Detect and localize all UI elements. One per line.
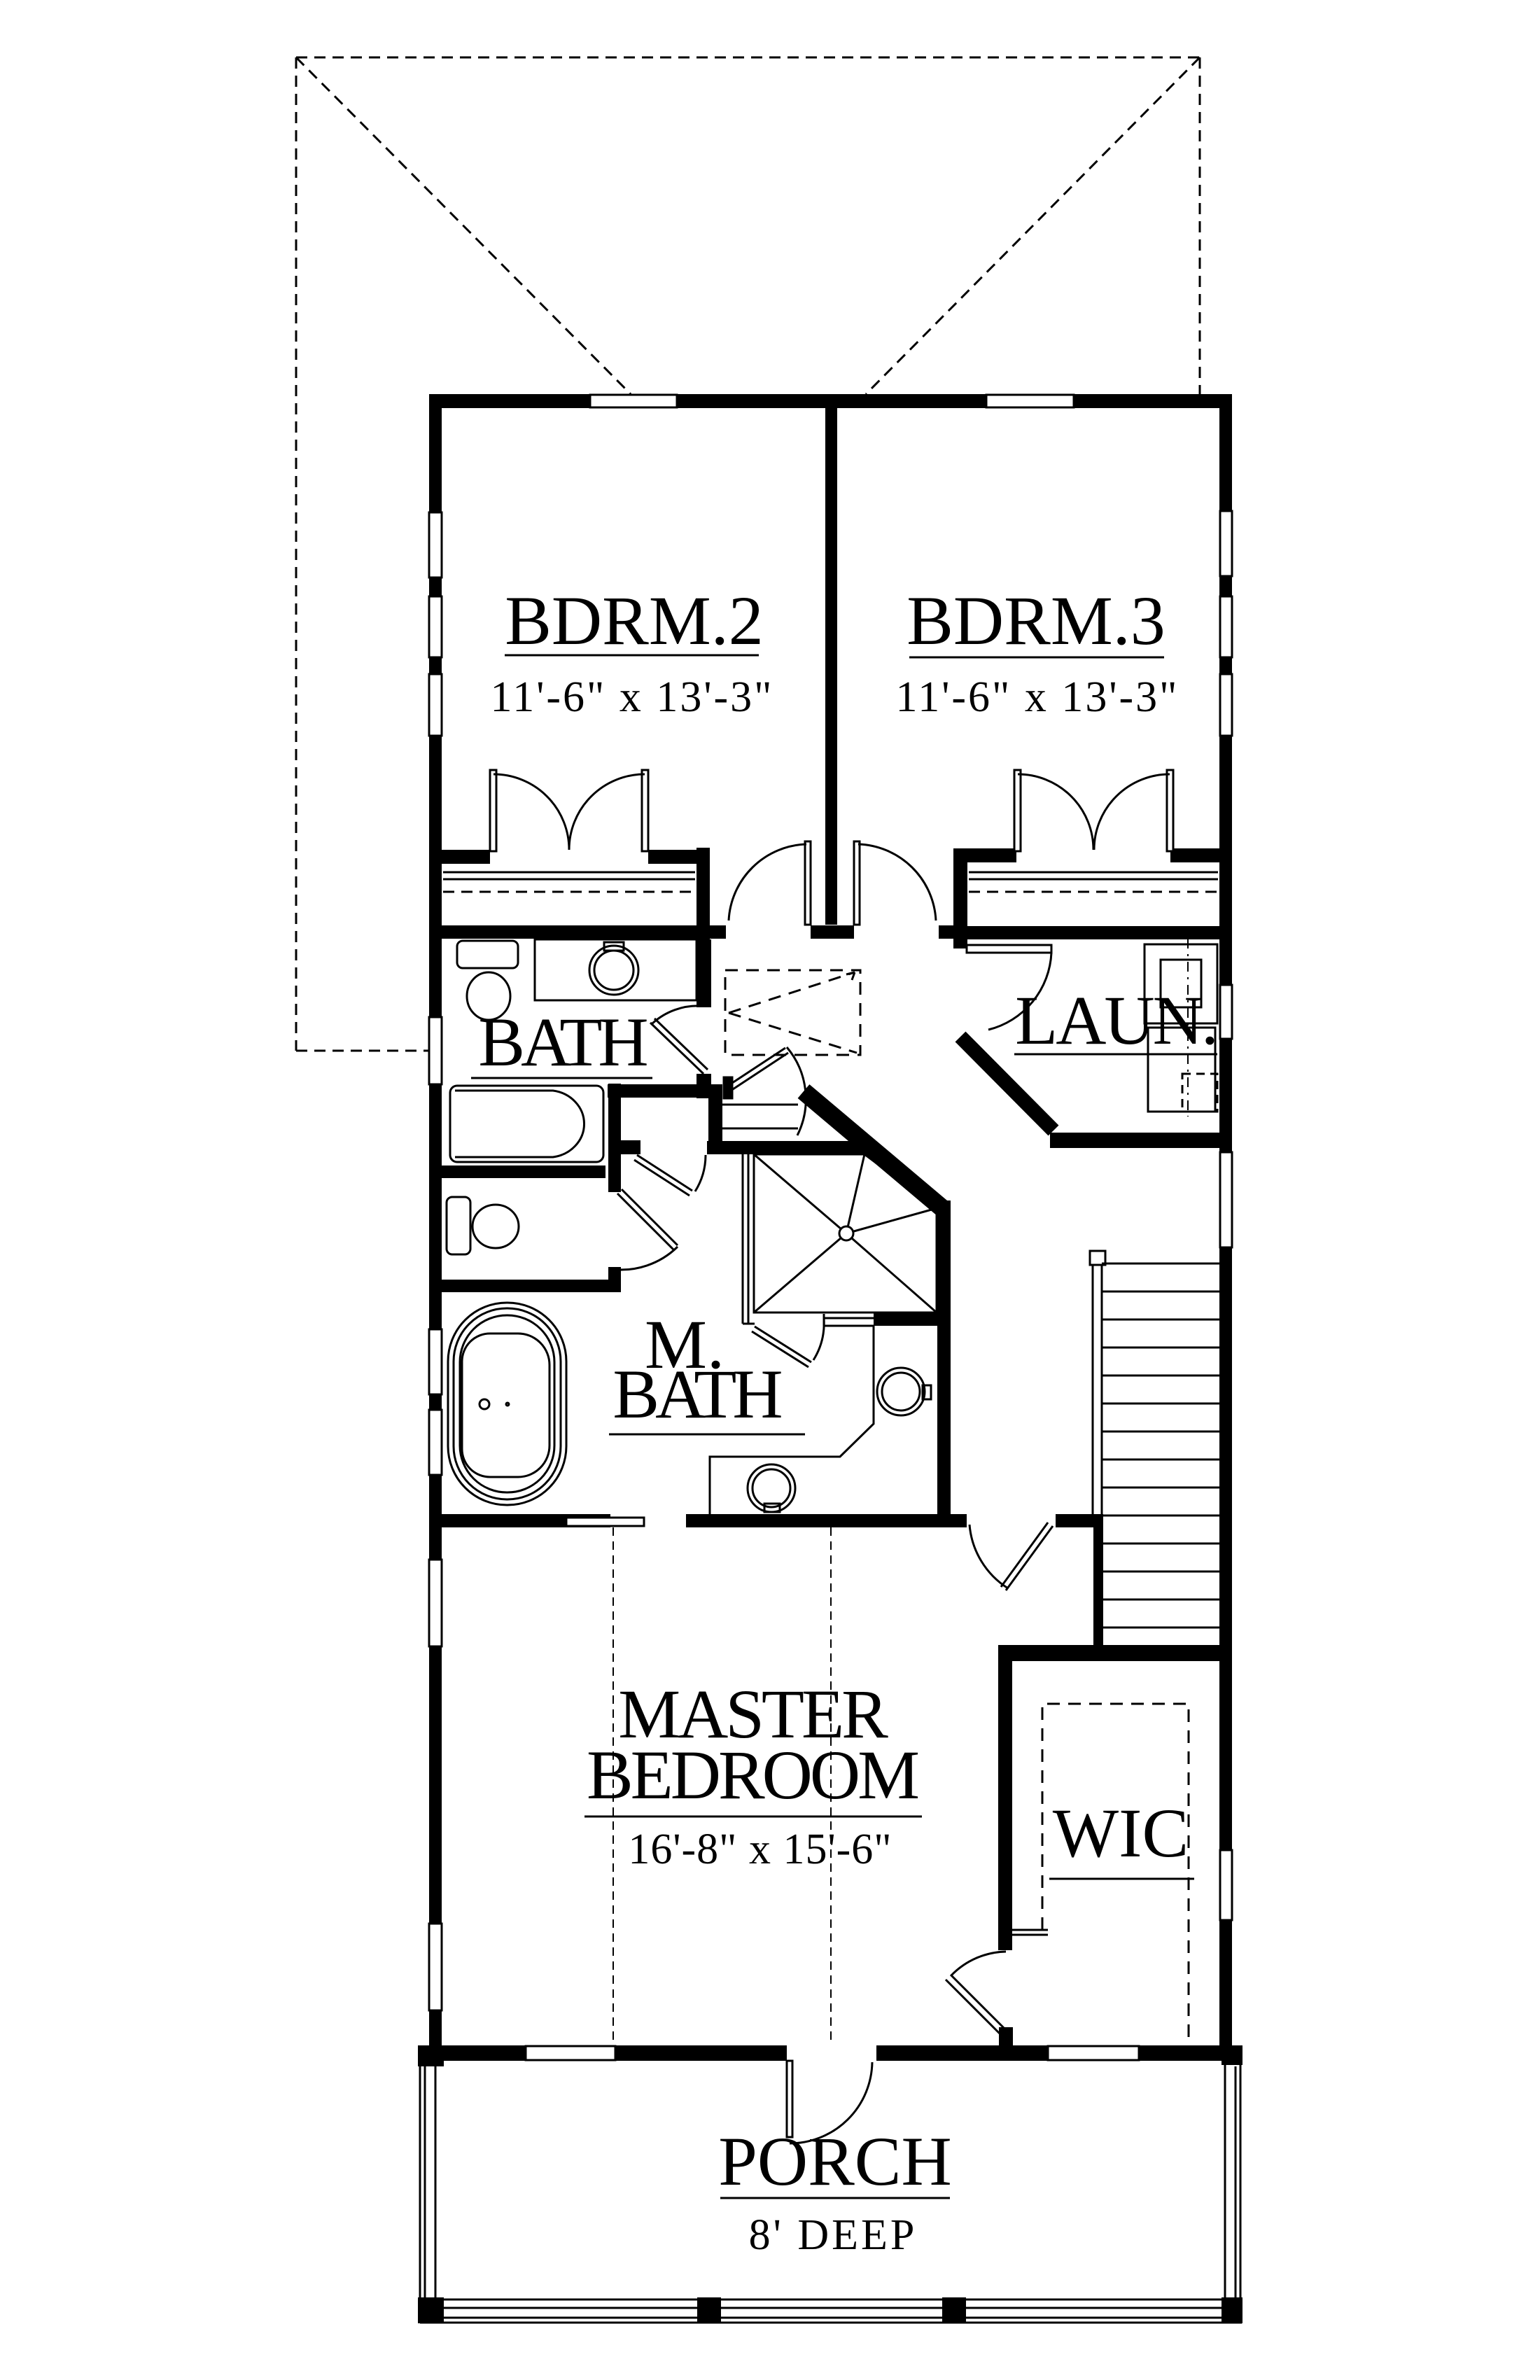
svg-text:LAUN.: LAUN. <box>1015 981 1217 1059</box>
svg-text:PORCH: PORCH <box>718 2122 951 2200</box>
svg-text:8' DEEP: 8' DEEP <box>749 2211 918 2259</box>
svg-text:WIC: WIC <box>1053 1794 1189 1872</box>
svg-text:BATH: BATH <box>612 1355 781 1433</box>
svg-text:BDRM.3: BDRM.3 <box>906 582 1165 659</box>
svg-text:BEDROOM: BEDROOM <box>587 1736 918 1814</box>
svg-text:11'-6" x 13'-3": 11'-6" x 13'-3" <box>896 673 1179 721</box>
svg-text:11'-6" x 13'-3": 11'-6" x 13'-3" <box>491 673 774 721</box>
svg-text:BATH: BATH <box>478 1003 647 1081</box>
svg-text:16'-8" x 15'-6": 16'-8" x 15'-6" <box>628 1826 892 1873</box>
svg-text:BDRM.2: BDRM.2 <box>505 582 764 659</box>
